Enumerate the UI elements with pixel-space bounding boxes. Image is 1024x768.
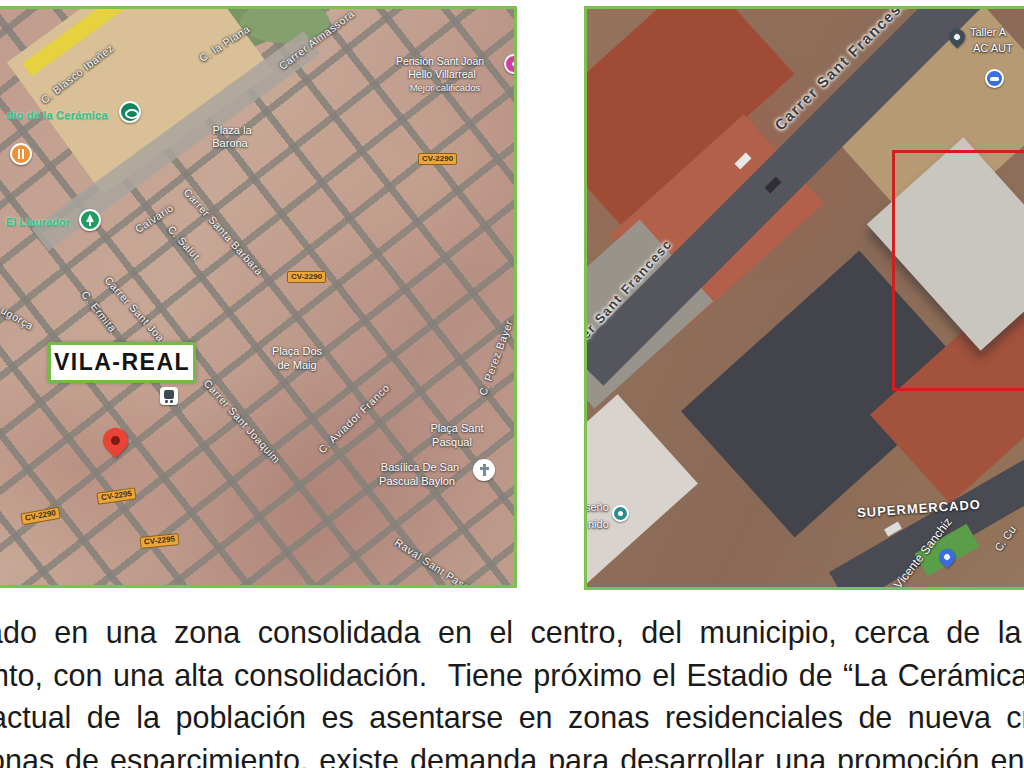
pension-label: Pensión Sant Joan (396, 55, 484, 67)
basilica-label: Basílica De San (381, 461, 459, 473)
lodging-icon (504, 54, 517, 74)
road-badge: CV-2290 (418, 153, 457, 165)
business-label-fragment: nido (588, 518, 609, 530)
pension-rating-label: Mejor calificados (410, 82, 481, 93)
taller-label: Taller A (970, 26, 1006, 38)
right-map-canvas: Carrer Sant Francesc rer Sant Francesc C… (587, 9, 1024, 587)
store-icon (612, 505, 629, 522)
taller-label: AC AUT (973, 42, 1013, 54)
pension-label: Hello Villarreal (408, 68, 476, 80)
plaza-barona-label: Barona (212, 137, 247, 149)
paragraph-line: onas de esparcimiento, existe demanda pa… (0, 743, 1024, 768)
church-icon (473, 459, 495, 481)
restaurant-icon (10, 143, 32, 165)
basilica-label: Pascual Baylon (379, 475, 455, 487)
left-map-canvas: C. Blasco Ibañez C. la Plana Carrer Alma… (0, 9, 514, 585)
property-boundary-rectangle (892, 150, 1024, 391)
city-label-box: VILA-REAL (48, 342, 196, 383)
placa-dos-maig-label: Plaça Dos (272, 345, 322, 357)
road-badge: CV-2290 (287, 271, 326, 283)
placa-sant-pasqual-label: Pasqual (432, 436, 472, 448)
paragraph-line: actual de la población es asentarse en z… (0, 700, 1024, 735)
plaza-barona-label: Plaza la (212, 124, 251, 136)
city-label: VILA-REAL (54, 349, 190, 376)
left-map-image: C. Blasco Ibañez C. la Plana Carrer Alma… (0, 6, 517, 588)
placa-sant-pasqual-label: Plaça Sant (430, 422, 483, 434)
business-label-fragment: seño (585, 501, 609, 513)
auto-shop-icon (985, 69, 1004, 88)
stadium-icon (119, 101, 141, 123)
bus-stop-icon (160, 387, 178, 405)
park-icon (79, 209, 101, 231)
placa-dos-maig-label: de Maig (277, 359, 316, 371)
right-map-image: Carrer Sant Francesc rer Sant Francesc C… (584, 6, 1024, 590)
paragraph-line: ado en una zona consolidada en el centro… (0, 615, 1024, 650)
paragraph-line: nto, con una alta consolidación. Tiene p… (0, 658, 1024, 693)
park-poi-label: El Llaurador (6, 216, 70, 228)
slide-page: { "slide": { "paragraph_lines": [ "ado e… (0, 0, 1024, 768)
stadium-poi-label: dio de la Cerámica (6, 109, 108, 121)
